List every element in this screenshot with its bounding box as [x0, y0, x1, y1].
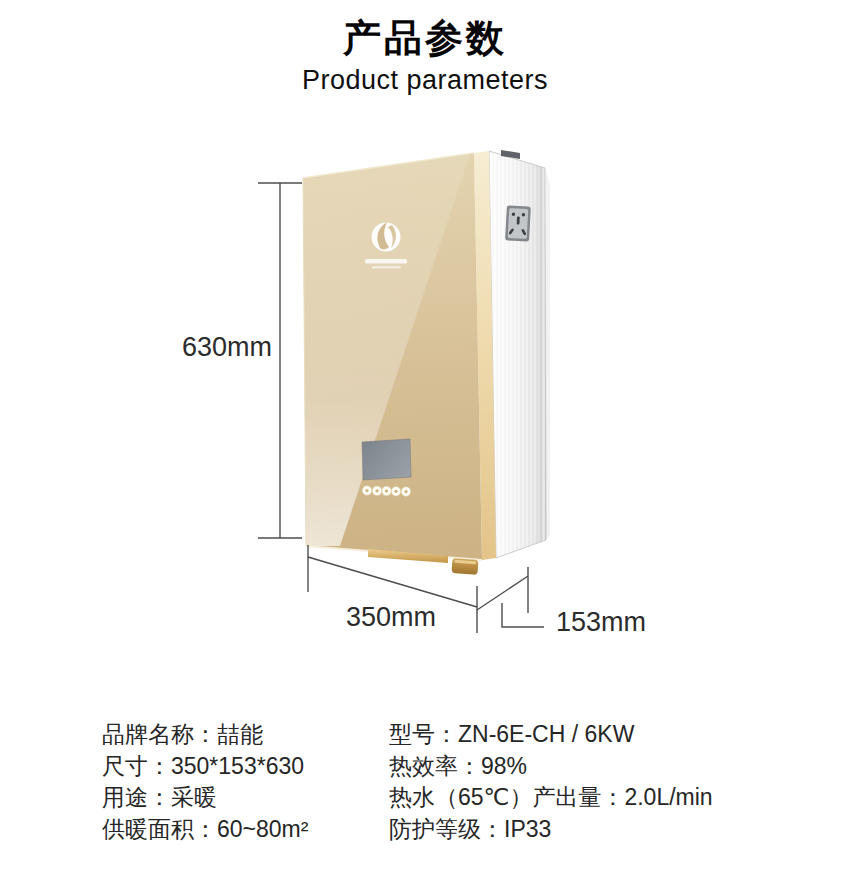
spec-line-protection-rating: 防护等级：IP33 — [389, 814, 713, 846]
spec-line-size: 尺寸：350*153*630 — [102, 751, 308, 783]
control-button — [382, 486, 392, 496]
specs-left-column: 品牌名称：喆能 尺寸：350*153*630 用途：采暖 供暖面积：60~80m… — [102, 719, 308, 845]
spec-line-brand: 品牌名称：喆能 — [102, 719, 308, 751]
control-buttons — [362, 486, 411, 497]
power-socket-icon — [505, 205, 531, 241]
dim-depth-line — [477, 567, 544, 627]
dim-depth-label: 153mm — [556, 607, 646, 637]
dim-width-label: 350mm — [346, 602, 436, 632]
spec-line-hot-water-output: 热水（65℃）产出量：2.0L/min — [389, 782, 713, 814]
page-subtitle: Product parameters — [0, 65, 850, 95]
product-figure: 630mm 350mm 153mm — [0, 140, 850, 660]
control-button — [391, 487, 401, 497]
product-illustration: 630mm 350mm 153mm — [0, 140, 850, 660]
page: 产品参数 Product parameters — [0, 0, 850, 888]
heater-product — [303, 150, 550, 575]
spec-line-usage: 用途：采暖 — [102, 782, 308, 814]
header: 产品参数 Product parameters — [0, 16, 850, 95]
spec-line-heating-area: 供暖面积：60~80m² — [102, 814, 308, 846]
lcd-display — [362, 439, 411, 480]
spec-line-model: 型号：ZN-6E-CH / 6KW — [389, 719, 713, 751]
spec-line-efficiency: 热效率：98% — [389, 751, 713, 783]
dim-height-label: 630mm — [182, 332, 272, 362]
front-panel — [303, 153, 482, 560]
bottom-foot — [451, 558, 478, 575]
control-button — [362, 486, 372, 496]
page-title: 产品参数 — [0, 16, 850, 60]
control-button — [401, 487, 411, 497]
control-button — [372, 486, 382, 496]
specs-right-column: 型号：ZN-6E-CH / 6KW 热效率：98% 热水（65℃）产出量：2.0… — [389, 719, 713, 845]
